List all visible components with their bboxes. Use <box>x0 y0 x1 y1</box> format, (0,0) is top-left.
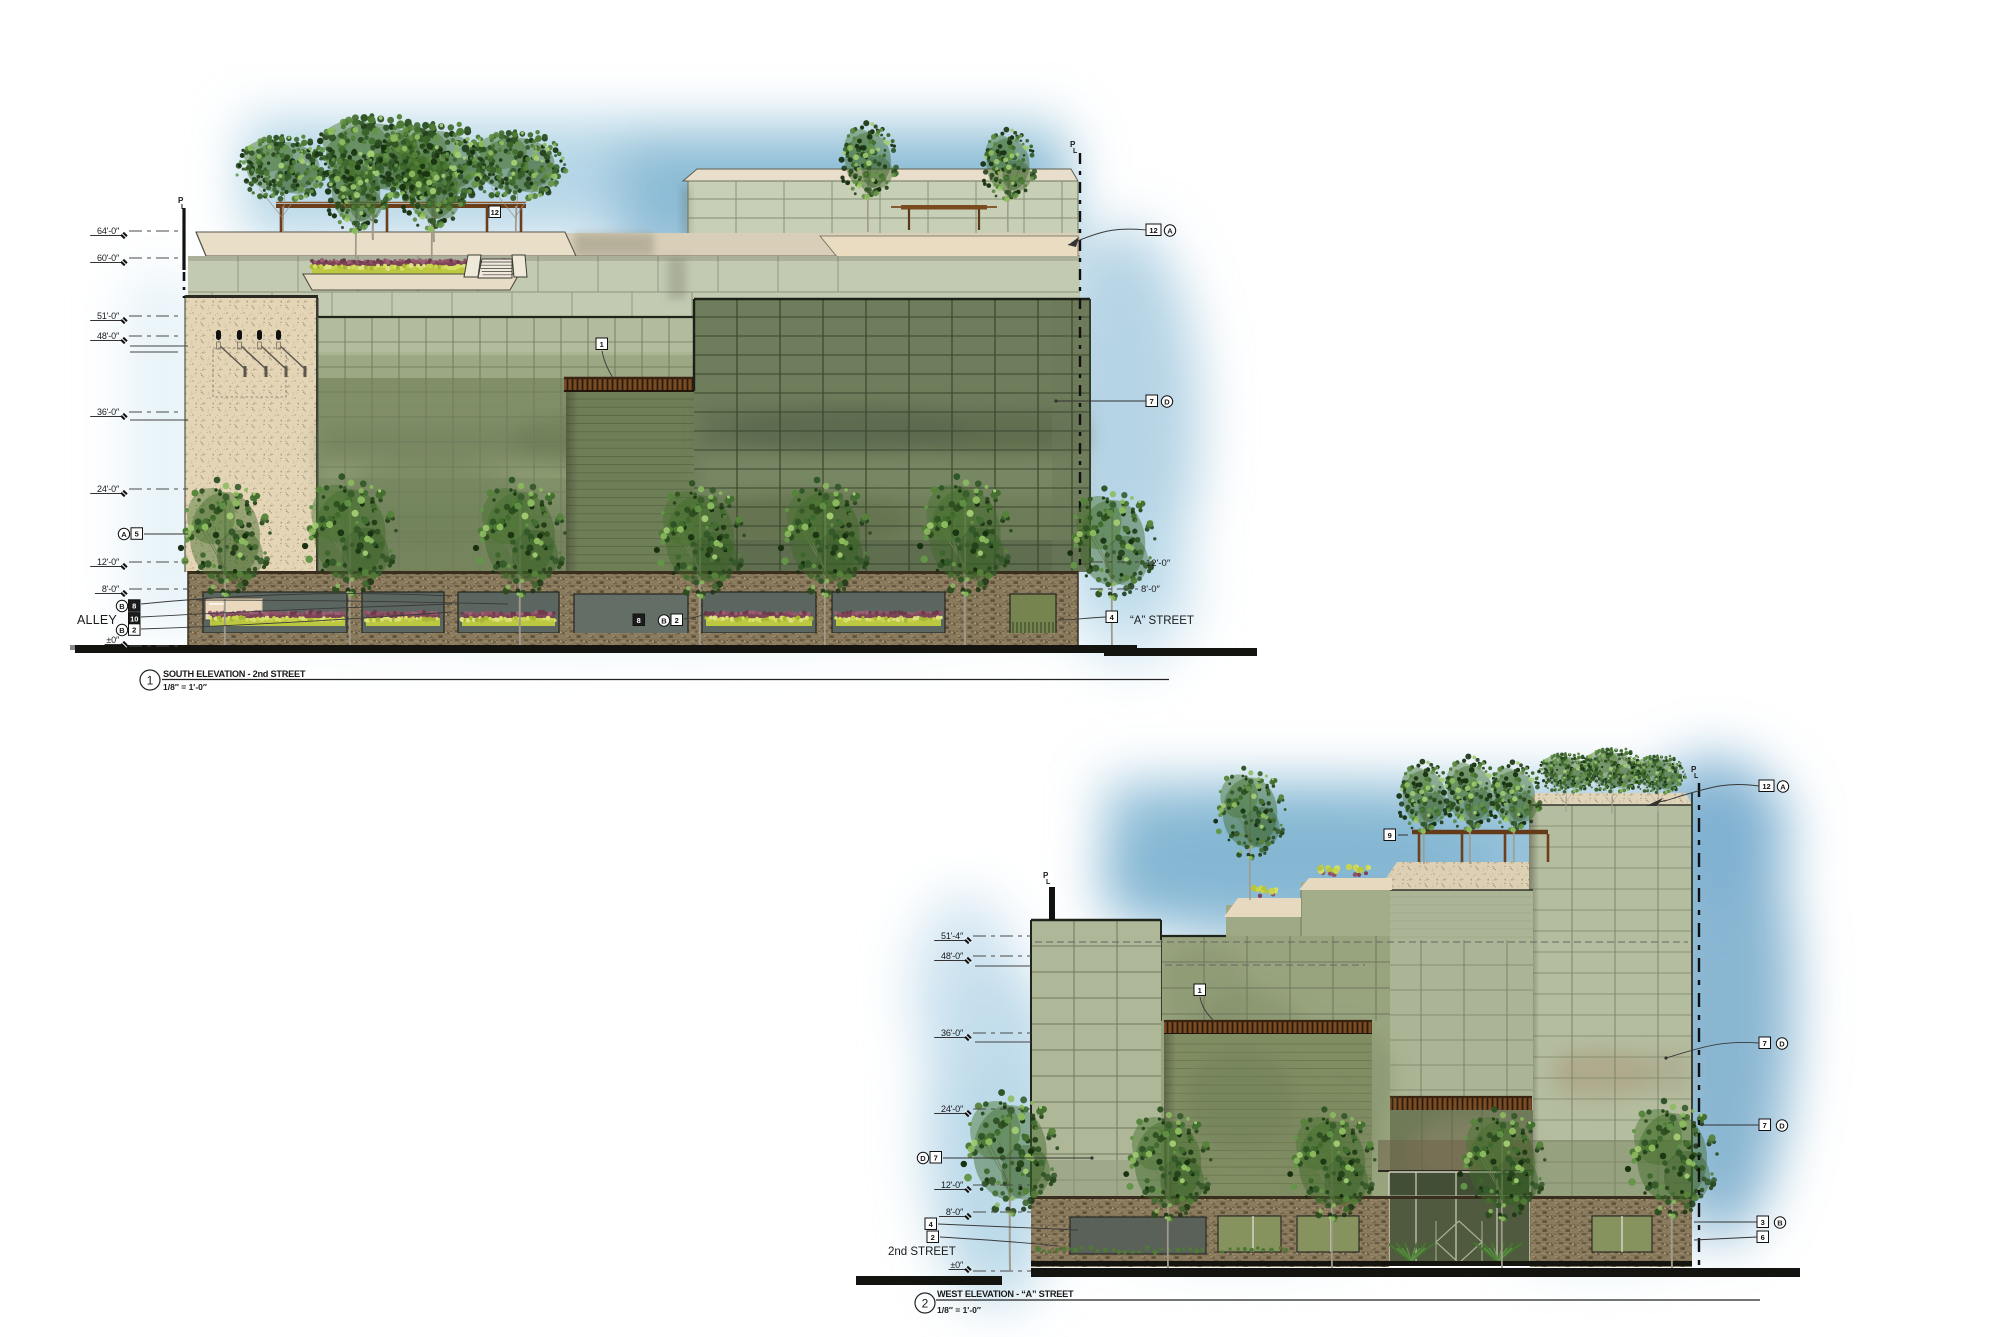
svg-text:12'-0″: 12'-0″ <box>1146 558 1171 569</box>
svg-text:1: 1 <box>147 674 154 688</box>
svg-text:±0″: ±0″ <box>106 635 120 645</box>
svg-text:8'-0″: 8'-0″ <box>102 584 120 594</box>
svg-text:8'-0″: 8'-0″ <box>946 1207 964 1217</box>
svg-text:D: D <box>1779 1122 1785 1131</box>
svg-text:ALLEY: ALLEY <box>77 613 117 627</box>
svg-text:48'-0″: 48'-0″ <box>941 951 964 961</box>
svg-text:12: 12 <box>1149 226 1157 235</box>
svg-text:D: D <box>1779 1040 1785 1049</box>
svg-text:48'-0″: 48'-0″ <box>97 331 120 341</box>
svg-text:51'-0″: 51'-0″ <box>97 311 120 321</box>
svg-text:B: B <box>661 617 667 626</box>
svg-text:9: 9 <box>1388 831 1392 840</box>
svg-text:B: B <box>119 626 125 635</box>
svg-text:24'-0″: 24'-0″ <box>941 1104 964 1114</box>
svg-text:7: 7 <box>1763 1039 1767 1048</box>
svg-text:51'-4″: 51'-4″ <box>941 931 964 941</box>
svg-text:12: 12 <box>491 208 499 217</box>
svg-text:2: 2 <box>675 616 679 625</box>
svg-text:2: 2 <box>132 626 136 635</box>
svg-text:8: 8 <box>132 602 136 611</box>
svg-text:6: 6 <box>1761 1233 1765 1242</box>
svg-text:12'-0″: 12'-0″ <box>941 1180 964 1190</box>
svg-text:36'-0″: 36'-0″ <box>941 1028 964 1038</box>
svg-text:“A” STREET: “A” STREET <box>1130 615 1194 627</box>
svg-text:SOUTH ELEVATION - 2nd STREET: SOUTH ELEVATION - 2nd STREET <box>163 669 306 679</box>
svg-text:12: 12 <box>1762 782 1770 791</box>
svg-text:36'-0″: 36'-0″ <box>97 407 120 417</box>
svg-text:WEST ELEVATION - “A” STREET: WEST ELEVATION - “A” STREET <box>937 1289 1074 1299</box>
svg-text:12'-0″: 12'-0″ <box>97 557 120 567</box>
svg-text:D: D <box>1164 398 1170 407</box>
svg-text:10: 10 <box>130 614 138 623</box>
svg-text:±0″: ±0″ <box>950 1260 964 1270</box>
svg-text:1: 1 <box>600 340 604 349</box>
svg-text:1: 1 <box>1198 986 1202 995</box>
svg-text:64'-0″: 64'-0″ <box>97 226 120 236</box>
svg-text:2nd STREET: 2nd STREET <box>888 1246 956 1258</box>
svg-text:5: 5 <box>135 530 139 539</box>
svg-text:D: D <box>920 1154 926 1163</box>
svg-text:A: A <box>1167 227 1173 236</box>
svg-text:A: A <box>1780 783 1786 792</box>
svg-text:L: L <box>1073 148 1078 155</box>
svg-text:24'-0″: 24'-0″ <box>97 484 120 494</box>
svg-text:60'-0″: 60'-0″ <box>97 253 120 263</box>
svg-text:7: 7 <box>934 1153 938 1162</box>
svg-text:A: A <box>121 530 127 539</box>
svg-text:L: L <box>1694 773 1699 780</box>
svg-text:7: 7 <box>1763 1121 1767 1130</box>
svg-text:7: 7 <box>1150 397 1154 406</box>
svg-text:2: 2 <box>931 1233 935 1242</box>
svg-text:1/8″ = 1'-0″: 1/8″ = 1'-0″ <box>163 682 207 692</box>
svg-text:L: L <box>1046 879 1051 886</box>
svg-text:3: 3 <box>1761 1218 1765 1227</box>
svg-text:B: B <box>1777 1219 1783 1228</box>
svg-text:2: 2 <box>922 1297 929 1311</box>
svg-text:B: B <box>119 602 125 611</box>
svg-text:1/8″ = 1'-0″: 1/8″ = 1'-0″ <box>937 1305 981 1315</box>
svg-text:8: 8 <box>637 616 641 625</box>
svg-text:8'-0″: 8'-0″ <box>1141 584 1161 595</box>
